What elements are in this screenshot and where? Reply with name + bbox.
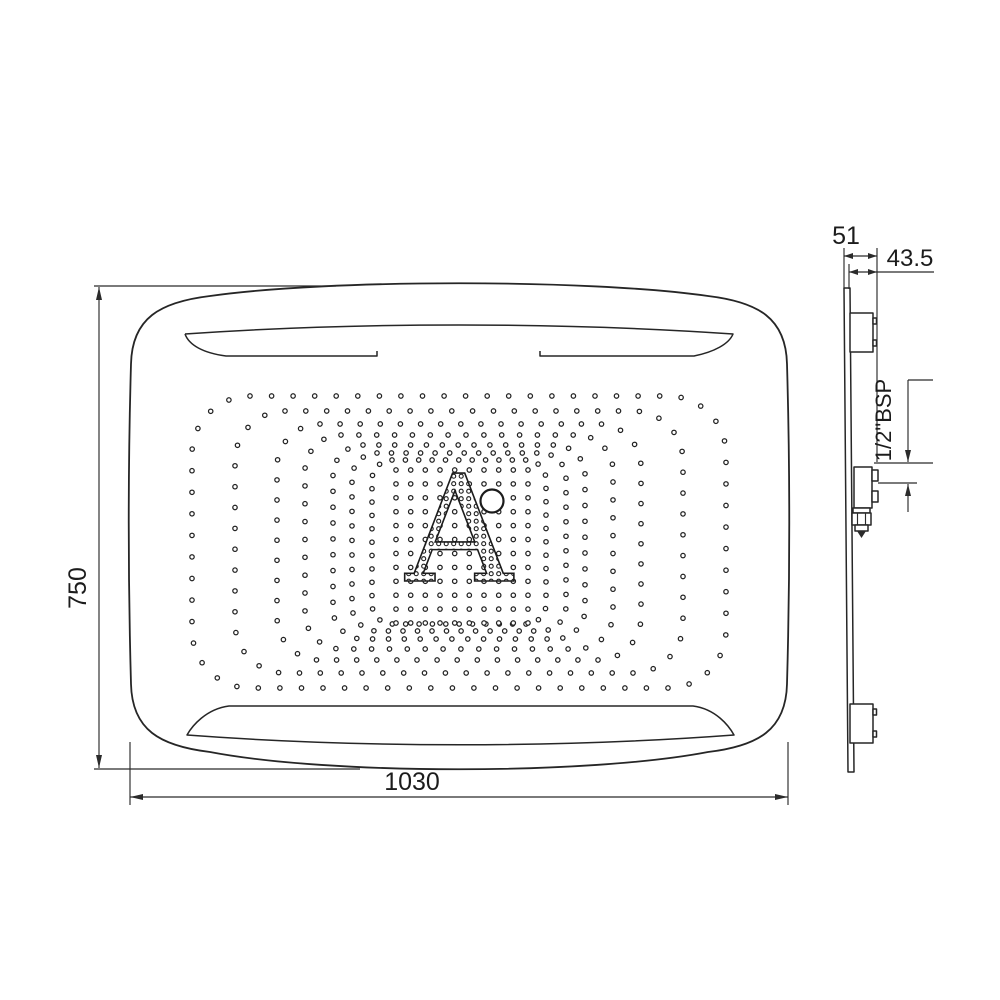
nozzle-dot	[526, 621, 530, 625]
nozzle-dot	[564, 534, 568, 538]
nozzle-dot	[377, 394, 381, 398]
nozzle-dot	[614, 394, 618, 398]
nozzle-dot	[639, 582, 643, 586]
nozzle-dot	[394, 482, 398, 486]
nozzle-dot	[564, 563, 568, 567]
nozzle-dot	[295, 652, 299, 656]
nozzle-dot	[402, 637, 406, 641]
nozzle-dot	[610, 671, 614, 675]
nozzle-dot	[303, 609, 307, 613]
nozzle-dot	[488, 629, 492, 633]
nozzle-dot	[681, 470, 685, 474]
nozzle-dot	[589, 671, 593, 675]
nozzle-dot	[578, 457, 582, 461]
nozzle-dot	[283, 439, 287, 443]
nozzle-dot	[377, 462, 381, 466]
nozzle-dot	[331, 584, 335, 588]
nozzle-dot	[528, 394, 532, 398]
nozzle-dot	[361, 443, 365, 447]
nozzle-dot	[583, 598, 587, 602]
nozzle-dot	[389, 451, 393, 455]
nozzle-dot	[618, 428, 622, 432]
nozzle-dot	[322, 437, 326, 441]
nozzle-dot	[190, 533, 194, 537]
nozzle-dot	[318, 671, 322, 675]
nozzle-dot	[257, 664, 261, 668]
nozzle-dot	[275, 558, 279, 562]
nozzle-dot	[275, 578, 279, 582]
nozzle-dot	[430, 622, 434, 626]
nozzle-dot	[370, 473, 374, 477]
nozzle-dot	[417, 622, 421, 626]
nozzle-dot	[190, 576, 194, 580]
nozzle-dot	[398, 422, 402, 426]
nozzle-dot	[190, 555, 194, 559]
nozzle-dot	[681, 616, 685, 620]
nozzle-dot	[611, 533, 615, 537]
nozzle-dot	[473, 629, 477, 633]
nozzle-dot	[507, 394, 511, 398]
nozzle-dot	[551, 443, 555, 447]
nozzle-dot	[227, 398, 231, 402]
nozzle-dot	[494, 647, 498, 651]
nozzle-dot	[350, 582, 354, 586]
nozzle-dot	[610, 462, 614, 466]
nozzle-dot	[724, 525, 728, 529]
nozzle-dot	[394, 579, 398, 583]
nozzle-dot	[331, 553, 335, 557]
nozzle-dot	[544, 580, 548, 584]
nozzle-dot	[377, 443, 381, 447]
nozzle-dot	[370, 580, 374, 584]
nozzle-dot	[242, 649, 246, 653]
nozzle-dot	[526, 482, 530, 486]
nozzle-dot	[409, 621, 413, 625]
nozzle-dot	[475, 658, 479, 662]
nozzle-dot	[350, 596, 354, 600]
nozzle-dot	[394, 523, 398, 527]
nozzle-dot	[526, 565, 530, 569]
nozzle-dot	[485, 394, 489, 398]
nozzle-dot	[463, 394, 467, 398]
nozzle-dot	[532, 629, 536, 633]
nozzle-dot	[350, 524, 354, 528]
nozzle-dot	[434, 637, 438, 641]
nozzle-dot	[539, 422, 543, 426]
nozzle-dot	[644, 686, 648, 690]
nozzle-dot	[544, 526, 548, 530]
inlet-thread-label: 1/2"BSP	[871, 379, 896, 461]
nozzle-dot	[209, 409, 213, 413]
height-label: 750	[64, 567, 92, 609]
nozzle-dot	[611, 587, 615, 591]
nozzle-dot	[370, 513, 374, 517]
nozzle-dot	[331, 473, 335, 477]
nozzle-dot	[583, 551, 587, 555]
nozzle-dot	[375, 451, 379, 455]
nozzle-dot	[571, 394, 575, 398]
nozzle-dot	[658, 394, 662, 398]
nozzle-dot	[281, 637, 285, 641]
nozzle-dot	[190, 598, 194, 602]
nozzle-dot	[370, 540, 374, 544]
side-view	[844, 288, 878, 772]
nozzle-dot	[190, 490, 194, 494]
nozzle-dot	[564, 491, 568, 495]
logo: A	[405, 444, 515, 616]
nozzle-dot	[303, 537, 307, 541]
nozzle-dot	[593, 394, 597, 398]
nozzle-dot	[191, 641, 195, 645]
nozzle-dot	[263, 413, 267, 417]
dimension-width-1030: 1030	[130, 742, 788, 805]
nozzle-dot	[393, 443, 397, 447]
nozzle-dot	[392, 433, 396, 437]
nozzle-dot	[350, 553, 354, 557]
nozzle-dot	[331, 521, 335, 525]
nozzle-dot	[420, 394, 424, 398]
nozzle-dot	[366, 409, 370, 413]
nozzle-dot	[535, 451, 539, 455]
nozzle-dot	[303, 591, 307, 595]
nozzle-dot	[360, 671, 364, 675]
nozzle-dot	[564, 520, 568, 524]
nozzle-dot	[370, 593, 374, 597]
nozzle-dot	[276, 670, 280, 674]
nozzle-dot	[544, 540, 548, 544]
nozzle-dot	[370, 553, 374, 557]
nozzle-dot	[303, 555, 307, 559]
nozzle-dot	[334, 394, 338, 398]
nozzle-dot	[387, 409, 391, 413]
nozzle-dot	[378, 618, 382, 622]
nozzle-dot	[611, 516, 615, 520]
nozzle-dot	[479, 422, 483, 426]
nozzle-dot	[394, 621, 398, 625]
nozzle-dot	[564, 505, 568, 509]
nozzle-dot	[520, 451, 524, 455]
nozzle-dot	[544, 486, 548, 490]
nozzle-dot	[681, 491, 685, 495]
nozzle-dot	[386, 629, 390, 633]
nozzle-dot	[402, 671, 406, 675]
nozzle-dot	[536, 658, 540, 662]
nozzle-dot	[616, 409, 620, 413]
nozzle-dot	[190, 512, 194, 516]
nozzle-dot	[482, 433, 486, 437]
top-groove	[185, 325, 733, 356]
front-view: A	[129, 283, 790, 769]
nozzle-dot	[724, 460, 728, 464]
nozzle-dot	[500, 433, 504, 437]
nozzle-dot	[256, 686, 260, 690]
nozzle-dot	[526, 551, 530, 555]
nozzle-dot	[535, 443, 539, 447]
nozzle-dot	[455, 658, 459, 662]
nozzle-dot	[639, 501, 643, 505]
nozzle-dot	[375, 658, 379, 662]
nozzle-dot	[303, 484, 307, 488]
nozzle-dot	[609, 623, 613, 627]
nozzle-dot	[346, 447, 350, 451]
nozzle-dot	[370, 527, 374, 531]
nozzle-dot	[235, 443, 239, 447]
nozzle-dot	[526, 593, 530, 597]
nozzle-dot	[457, 622, 461, 626]
nozzle-dot	[615, 653, 619, 657]
nozzle-dot	[678, 637, 682, 641]
nozzle-dot	[611, 480, 615, 484]
nozzle-dot	[331, 568, 335, 572]
nozzle-dot	[582, 614, 586, 618]
nozzle-dot	[481, 637, 485, 641]
nozzle-dot	[441, 647, 445, 651]
nozzle-dot	[681, 595, 685, 599]
nozzle-dot	[467, 621, 471, 625]
nozzle-dot	[352, 647, 356, 651]
dimension-height-750: 750	[64, 286, 360, 769]
nozzle-dot	[298, 426, 302, 430]
nozzle-dot	[536, 618, 540, 622]
nozzle-dot	[356, 394, 360, 398]
nozzle-dot	[718, 653, 722, 657]
nozzle-dot	[566, 647, 570, 651]
nozzle-dot	[472, 686, 476, 690]
nozzle-dot	[394, 551, 398, 555]
nozzle-dot	[526, 468, 530, 472]
nozzle-dot	[639, 562, 643, 566]
nozzle-dot	[638, 622, 642, 626]
nozzle-dot	[355, 658, 359, 662]
nozzle-dot	[583, 583, 587, 587]
nozzle-dot	[639, 522, 643, 526]
nozzle-dot	[550, 394, 554, 398]
nozzle-dot	[435, 658, 439, 662]
nozzle-dot	[439, 422, 443, 426]
nozzle-dot	[512, 409, 516, 413]
nozzle-dot	[418, 422, 422, 426]
nozzle-dot	[724, 568, 728, 572]
dimension-inlet-bsp: 1/2"BSP	[871, 379, 933, 512]
nozzle-dot	[519, 443, 523, 447]
nozzle-dot	[394, 468, 398, 472]
upper-bracket	[850, 313, 877, 352]
nozzle-dot	[517, 629, 521, 633]
nozzle-dot	[248, 394, 252, 398]
inlet-housing	[852, 467, 878, 538]
nozzle-dot	[422, 671, 426, 675]
nozzle-dot	[724, 503, 728, 507]
nozzle-dot	[515, 658, 519, 662]
nozzle-dot	[705, 671, 709, 675]
nozzle-dot	[517, 433, 521, 437]
nozzle-dot	[233, 526, 237, 530]
nozzle-dot	[429, 686, 433, 690]
nozzle-dot	[493, 686, 497, 690]
nozzle-dot	[583, 567, 587, 571]
nozzle-dot	[679, 395, 683, 399]
nozzle-dot	[699, 404, 703, 408]
nozzle-dot	[724, 633, 728, 637]
inlet-nipple	[852, 508, 871, 538]
nozzle-dot	[544, 553, 548, 557]
nozzle-dot	[339, 433, 343, 437]
nozzle-dot	[269, 394, 273, 398]
nozzle-dot	[444, 622, 448, 626]
nozzle-dot	[681, 512, 685, 516]
nozzle-dot	[235, 684, 239, 688]
nozzle-dot	[639, 542, 643, 546]
nozzle-dot	[233, 505, 237, 509]
nozzle-dot	[589, 436, 593, 440]
nozzle-dot	[623, 686, 627, 690]
nozzle-dot	[200, 661, 204, 665]
nozzle-dot	[428, 433, 432, 437]
nozzle-dot	[450, 637, 454, 641]
nozzle-dot	[404, 622, 408, 626]
nozzle-dot	[275, 538, 279, 542]
nozzle-dot	[394, 565, 398, 569]
nozzle-dot	[639, 602, 643, 606]
nozzle-dot	[584, 646, 588, 650]
nozzle-dot	[438, 621, 442, 625]
nozzle-dot	[190, 469, 194, 473]
nozzle-dot	[370, 487, 374, 491]
nozzle-dot	[583, 503, 587, 507]
nozzle-dot	[543, 473, 547, 477]
nozzle-dot	[369, 647, 373, 651]
nozzle-dot	[303, 466, 307, 470]
nozzle-dot	[386, 637, 390, 641]
nozzle-dot	[544, 500, 548, 504]
nozzle-dot	[503, 629, 507, 633]
nozzle-dot	[394, 607, 398, 611]
nozzle-dot	[535, 433, 539, 437]
nozzle-dot	[370, 607, 374, 611]
nozzle-dot	[415, 629, 419, 633]
nozzle-dot	[442, 394, 446, 398]
lower-bracket	[850, 704, 877, 743]
nozzle-dot	[459, 647, 463, 651]
nozzle-dot	[246, 425, 250, 429]
nozzle-dot	[526, 496, 530, 500]
nozzle-dot	[554, 409, 558, 413]
nozzle-dot	[325, 409, 329, 413]
nozzle-dot	[666, 686, 670, 690]
nozzle-dot	[527, 671, 531, 675]
nozzle-dot	[405, 647, 409, 651]
nozzle-dot	[580, 686, 584, 690]
nozzle-dot	[544, 593, 548, 597]
nozzle-dot	[722, 439, 726, 443]
nozzle-dot	[410, 433, 414, 437]
nozzle-dot	[443, 671, 447, 675]
nozzle-dot	[714, 419, 718, 423]
logo-letter: A	[405, 444, 515, 616]
nozzle-dot	[681, 574, 685, 578]
nozzle-dot	[359, 623, 363, 627]
drawing-svg: A 750 1030	[0, 0, 1000, 1000]
nozzle-dot	[583, 487, 587, 491]
nozzle-dot	[355, 636, 359, 640]
nozzle-dot	[275, 498, 279, 502]
nozzle-dot	[724, 611, 728, 615]
nozzle-dot	[233, 610, 237, 614]
nozzle-dot	[190, 619, 194, 623]
nozzle-dot	[275, 619, 279, 623]
nozzle-dot	[345, 409, 349, 413]
technical-drawing: A 750 1030	[0, 0, 1000, 1000]
nozzle-dot	[526, 579, 530, 583]
nozzle-dot	[334, 646, 338, 650]
nozzle-dot	[657, 416, 661, 420]
nozzle-dot	[331, 505, 335, 509]
nozzle-dot	[313, 394, 317, 398]
nozzle-dot	[603, 446, 607, 450]
nozzle-dot	[687, 682, 691, 686]
nozzle-dot	[571, 433, 575, 437]
nozzle-dot	[394, 537, 398, 541]
nozzle-dot	[632, 442, 636, 446]
nozzle-dot	[430, 629, 434, 633]
nozzle-dot	[561, 636, 565, 640]
nozzle-dot	[611, 569, 615, 573]
nozzle-dot	[275, 478, 279, 482]
nozzle-dot	[547, 671, 551, 675]
nozzle-dot	[233, 589, 237, 593]
nozzle-dot	[372, 629, 376, 633]
nozzle-dot	[459, 422, 463, 426]
nozzle-dot	[477, 647, 481, 651]
nozzle-dot	[511, 621, 515, 625]
nozzle-dot	[601, 686, 605, 690]
nozzle-dot	[519, 422, 523, 426]
logo-degree-circle	[481, 490, 504, 513]
nozzle-dot	[303, 573, 307, 577]
nozzle-dot	[485, 671, 489, 675]
nozzle-dot	[526, 523, 530, 527]
nozzle-dot	[350, 480, 354, 484]
dimension-depth-43-5: 43.5	[849, 245, 934, 289]
total-depth-label: 51	[832, 222, 860, 250]
nozzle-dot	[546, 628, 550, 632]
nozzle-dot	[529, 637, 533, 641]
nozzle-dot	[724, 590, 728, 594]
nozzle-dot	[401, 629, 405, 633]
nozzle-dot	[352, 466, 356, 470]
nozzle-dot	[636, 394, 640, 398]
nozzle-dot	[423, 647, 427, 651]
nozzle-dot	[378, 422, 382, 426]
nozzle-dot	[446, 433, 450, 437]
nozzle-dot	[536, 686, 540, 690]
nozzle-dot	[429, 409, 433, 413]
nozzle-dot	[233, 464, 237, 468]
nozzle-dot	[583, 519, 587, 523]
nozzle-dot	[390, 458, 394, 462]
nozzle-dot	[395, 658, 399, 662]
nozzle-dot	[544, 566, 548, 570]
nozzle-dot	[196, 426, 200, 430]
nozzle-dot	[599, 637, 603, 641]
nozzle-dot	[215, 676, 219, 680]
nozzle-dot	[631, 671, 635, 675]
nozzle-dot	[351, 611, 355, 615]
nozzle-dot	[724, 482, 728, 486]
face-depth-label: 43.5	[887, 245, 934, 272]
nozzle-dot	[283, 409, 287, 413]
bottom-groove	[187, 706, 734, 745]
